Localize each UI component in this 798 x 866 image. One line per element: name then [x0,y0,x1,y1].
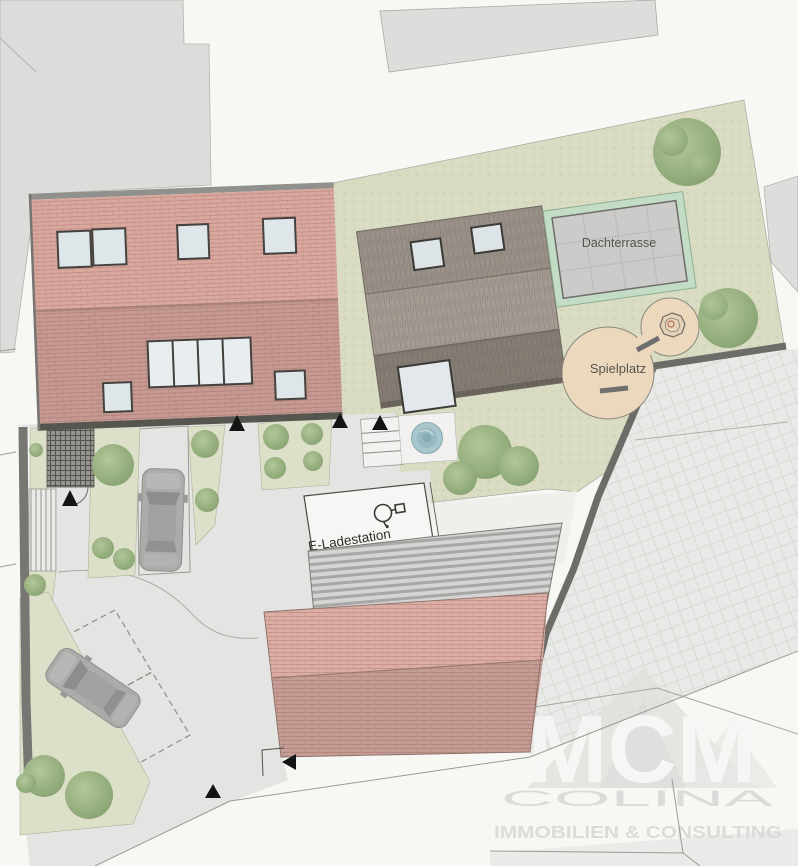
rear-building [357,206,568,416]
sandbox-icon [660,313,685,337]
skylight [92,228,126,265]
wooden-deck [47,427,94,487]
skylight [263,218,296,254]
site-plan-drawing: MCM COLINA IMMOBILIEN & CONSULTING E-Lad… [0,0,798,866]
skylight [103,382,132,412]
watermark-tagline: IMMOBILIEN & CONSULTING [494,822,782,842]
roof-terrace-label: Dachterrasse [582,236,656,250]
skylight [57,231,91,268]
watermark-name: COLINA [501,786,774,811]
skylight [275,370,306,399]
tree [698,288,758,348]
car [135,468,189,572]
skylight [471,224,504,254]
skylight [398,360,456,413]
tree [653,118,721,186]
skylight [177,224,209,259]
outbuilding-roof [264,593,548,757]
water-feature [412,423,443,454]
bench [600,388,628,391]
site-plan: MCM COLINA IMMOBILIEN & CONSULTING E-Lad… [0,0,798,866]
exterior-steps-left [29,489,56,571]
skylight [411,238,445,270]
main-building [29,182,343,431]
boundary-wall-left [23,427,29,792]
playground-label: Spielplatz [590,361,646,376]
